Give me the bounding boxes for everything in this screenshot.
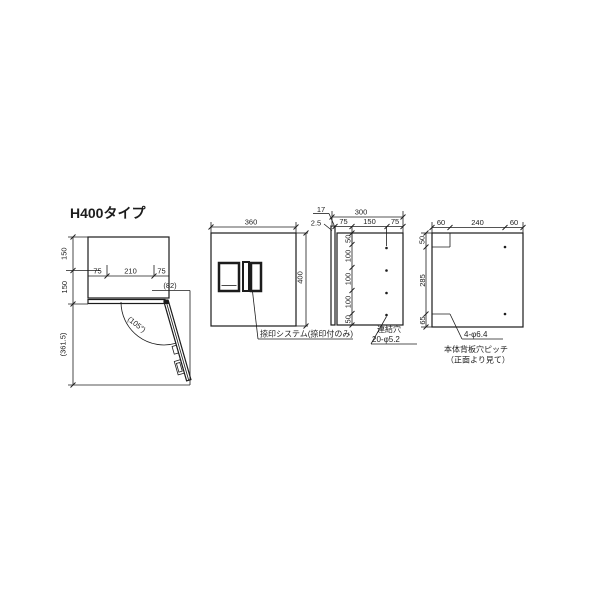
back-hole-note-group: 4-φ6.4 本体背板穴ピッチ （正面より見て） <box>444 314 510 365</box>
lock-slot <box>243 262 249 291</box>
front-width-dim: 360 <box>245 218 258 227</box>
door-latch-small <box>172 345 179 354</box>
back-view: 60 240 60 50 285 65 <box>418 218 526 365</box>
side-view: 300 17 2.5 75 150 75 <box>311 205 417 344</box>
drawing-canvas: H400タイプ (105°) 150 150 <box>0 0 600 600</box>
depth-top-dim: 150 <box>59 247 68 260</box>
front-view: 360 400 捺印システム(捺印付のみ) <box>209 218 354 340</box>
back-top-left-dim: 60 <box>437 218 445 227</box>
depth-bottom-dim: 150 <box>60 281 69 294</box>
door-edge-strip <box>331 226 335 325</box>
back-left-dim-chain: 50 285 65 <box>418 231 433 330</box>
side-v-dim-1: 50 <box>344 235 353 243</box>
handle-lock-unit <box>219 262 261 291</box>
door-inner-line <box>166 301 189 380</box>
stamp-window <box>219 263 239 291</box>
side-v-dim-3: 100 <box>344 273 353 286</box>
width-right-dim: 75 <box>157 267 165 276</box>
back-left-center-dim: 285 <box>418 274 427 287</box>
front-frame-strip <box>88 300 165 304</box>
front-width-dim-group: 360 <box>209 218 299 234</box>
front-height-dim-group: 400 <box>296 231 309 329</box>
connection-hole-size: 20-φ5.2 <box>372 335 400 344</box>
back-left-bottom-dim: 65 <box>418 316 427 324</box>
door-reach-dim: (361.5) <box>59 332 68 356</box>
back-left-top-dim: 50 <box>418 236 427 244</box>
back-top-dim-row: 60 240 60 <box>430 218 526 233</box>
side-v-dim-5: 50 <box>344 315 353 323</box>
connection-hole-note-group: 連結穴 20-φ5.2 <box>371 317 417 345</box>
gap-dim: 2.5 <box>311 219 321 228</box>
open-view: (105°) 150 150 (361.5) 75 <box>59 235 191 388</box>
connection-hole-label: 連結穴 <box>377 324 401 334</box>
width-center-dim: 210 <box>124 267 137 276</box>
page-title: H400タイプ <box>70 205 146 221</box>
side-top-center-dim: 150 <box>363 217 376 226</box>
connection-holes <box>385 247 388 317</box>
protrusion-dim-group: (82) <box>152 281 190 385</box>
gap-dim-group: 2.5 <box>311 219 332 231</box>
back-hole-markers <box>432 233 506 315</box>
side-top-right-dim: 75 <box>391 217 399 226</box>
door-angle-dim: (105°) <box>126 315 148 335</box>
front-height-dim: 400 <box>296 271 305 284</box>
side-v-dim-2: 100 <box>344 250 353 263</box>
width-dim-row: 75 210 75 <box>88 265 169 279</box>
door-latch-large <box>174 360 184 375</box>
back-top-center-dim: 240 <box>471 218 484 227</box>
side-vertical-dim-chain: 50 100 100 100 50 <box>344 231 355 328</box>
side-depth-dim: 300 <box>355 208 368 217</box>
back-top-right-dim: 60 <box>510 218 518 227</box>
side-top-left-dim: 75 <box>339 217 347 226</box>
door-thickness-dim: 17 <box>317 205 325 214</box>
side-v-dim-4: 100 <box>344 296 353 309</box>
stamp-note-group: 捺印システム(捺印付のみ) <box>253 292 354 340</box>
open-door <box>158 301 191 383</box>
handle-slot <box>251 263 261 291</box>
width-left-dim: 75 <box>93 267 101 276</box>
back-note-line1: 本体背板穴ピッチ <box>444 344 508 354</box>
stamp-note: 捺印システム(捺印付のみ) <box>260 329 353 339</box>
back-note-line2: （正面より見て） <box>446 356 510 365</box>
protrusion-dim: (82) <box>163 281 177 290</box>
back-hole-size: 4-φ6.4 <box>464 330 488 339</box>
technical-drawing: H400タイプ (105°) 150 150 <box>0 0 600 600</box>
